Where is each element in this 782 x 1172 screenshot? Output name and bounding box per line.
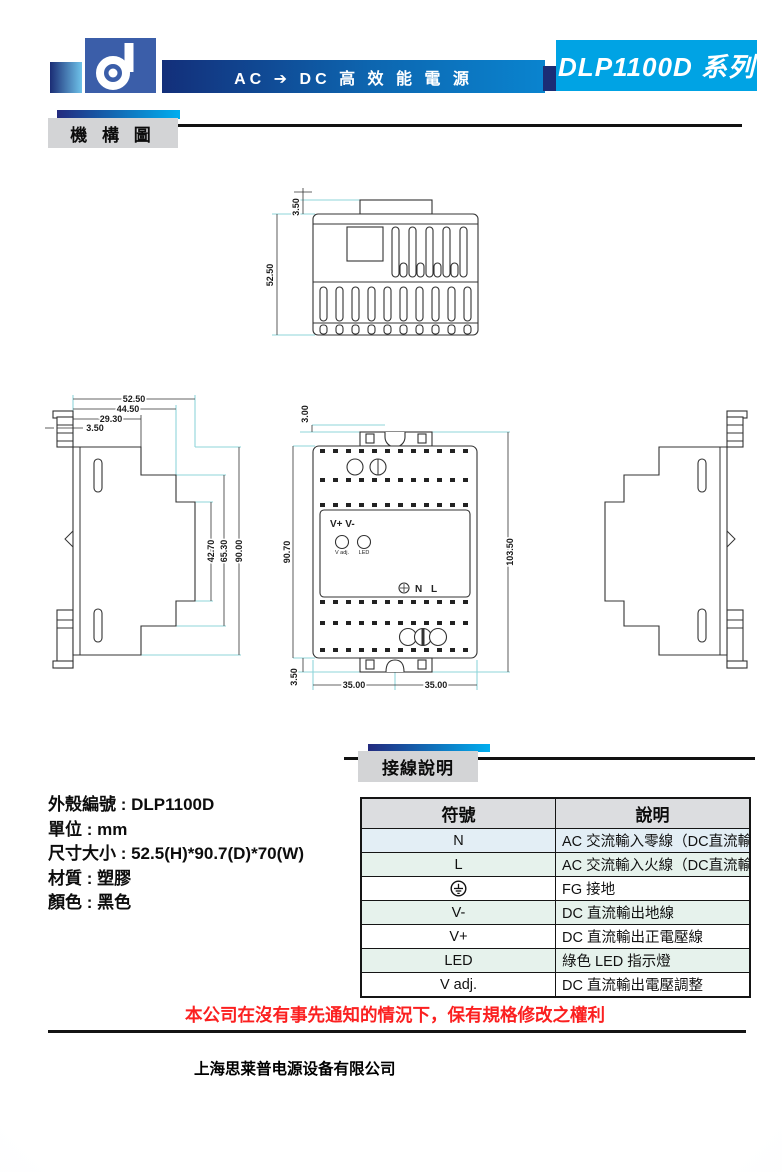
mechanical-drawings: 3.50 52.50 52.50 44.50 29.30 (40, 180, 782, 740)
front-view-dim-total-height: 103.50 (505, 538, 515, 566)
wiring-table: 符號 說明 N AC 交流輸入零線（DC直流輸入時無極性） L AC 交流輸入火… (360, 797, 751, 998)
top-view-dim-tab: 3.50 (291, 198, 301, 216)
mechanical-section-rule (178, 124, 742, 127)
ground-symbol-icon (399, 583, 409, 593)
front-view-drawing: V+ V- V adj. LED N L 90.70 (282, 405, 515, 690)
front-view-dim-tab: 3.00 (300, 405, 310, 423)
wiring-section-rule (478, 757, 755, 760)
front-panel-output-label: V+ V- (330, 519, 355, 530)
wiring-section-label: 接線說明 (358, 751, 478, 782)
table-row: V adj. DC 直流輸出電壓調整 (361, 973, 750, 998)
side-view-dim-h-full: 90.00 (234, 540, 244, 563)
right-side-view-drawing (605, 411, 747, 668)
logo-accent-bar (50, 62, 82, 93)
spec-unit: 單位 : mm (48, 818, 304, 843)
series-title: DLP1100D 系列 (558, 47, 755, 84)
table-row: N AC 交流輸入零線（DC直流輸入時無極性） (361, 829, 750, 853)
datasheet-page: AC ➔ DC 高 效 能 電 源 DLP1100D 系列 機 構 圖 (0, 0, 782, 1172)
front-view-dim-body-height: 90.70 (282, 541, 292, 564)
front-panel-vadj-label: V adj. (335, 550, 350, 556)
tagline-text: AC ➔ DC 高 效 能 電 源 (234, 65, 473, 89)
wiring-section-title: 接線說明 (382, 754, 454, 779)
table-row: L AC 交流輸入火線（DC直流輸入時無極性） (361, 853, 750, 877)
col-header-symbol: 符號 (361, 798, 556, 829)
table-header-row: 符號 說明 (361, 798, 750, 829)
logo-d-icon (85, 38, 156, 93)
table-row: LED 綠色 LED 指示燈 (361, 949, 750, 973)
disclaimer-text: 本公司在沒有事先通知的情況下，保有規格修改之權利 (48, 1002, 742, 1027)
front-view-dim-bottom-tab: 3.50 (289, 668, 299, 686)
table-row: V+ DC 直流輸出正電壓線 (361, 925, 750, 949)
front-panel-led-label: LED (359, 550, 370, 556)
table-row: FG 接地 (361, 877, 750, 901)
spec-model: 外殼編號 : DLP1100D (48, 793, 304, 818)
top-view-dim-depth: 52.50 (265, 264, 275, 287)
spec-dimensions: 尺寸大小 : 52.5(H)*90.7(D)*70(W) (48, 842, 304, 867)
wiring-section-left-tick (344, 757, 358, 760)
mechanical-section-title: 機 構 圖 (70, 121, 155, 146)
side-view-dim-full-depth: 52.50 (123, 394, 146, 404)
side-view-dim-h-front: 65.30 (219, 540, 229, 563)
left-side-view-drawing: 52.50 44.50 29.30 3.50 42.70 65.30 90.00 (45, 394, 244, 668)
company-name: 上海思莱普电源设备有限公司 (194, 1057, 396, 1079)
tagline-bar: AC ➔ DC 高 效 能 電 源 (162, 60, 545, 93)
side-view-dim-clip: 3.50 (86, 423, 104, 433)
mechanical-section-label: 機 構 圖 (48, 118, 178, 148)
front-view-dim-w-left: 35.00 (343, 680, 366, 690)
series-accent-square (543, 66, 556, 91)
earth-ground-icon (450, 880, 467, 897)
footer-rule (48, 1030, 746, 1033)
spec-material: 材質 : 塑膠 (48, 867, 304, 892)
enclosure-specs: 外殼編號 : DLP1100D 單位 : mm 尺寸大小 : 52.5(H)*9… (48, 793, 304, 916)
side-view-dim-mid-depth: 44.50 (117, 404, 140, 414)
table-row: V- DC 直流輸出地線 (361, 901, 750, 925)
col-header-description: 說明 (556, 798, 751, 829)
top-view-drawing: 3.50 52.50 (265, 188, 478, 335)
series-badge: DLP1100D 系列 (556, 40, 757, 91)
front-view-dim-w-right: 35.00 (425, 680, 448, 690)
front-panel-input-label: N L (415, 584, 440, 595)
side-view-dim-h-mid: 42.70 (206, 540, 216, 563)
company-logo (85, 38, 156, 93)
spec-color: 顏色 : 黑色 (48, 891, 304, 916)
